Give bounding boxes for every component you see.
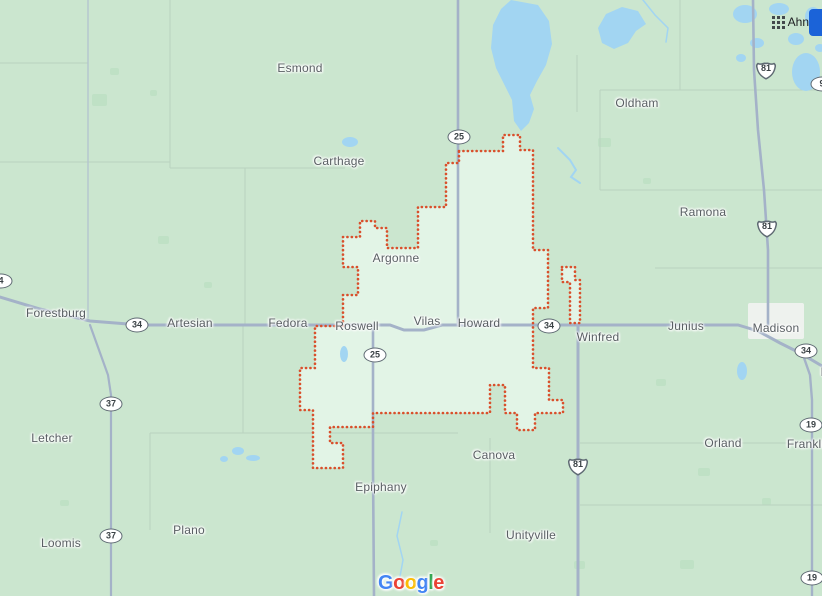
google-logo-letter: g — [417, 572, 429, 594]
route-shield-34: 34 — [795, 344, 818, 359]
place-label-winfred[interactable]: Winfred — [577, 330, 620, 344]
route-shield-34: 34 — [538, 319, 561, 334]
top-right-chip[interactable]: Ahn — [772, 15, 809, 29]
vegetation-patch — [698, 468, 710, 476]
pond — [737, 362, 747, 380]
place-label-letcher[interactable]: Letcher — [31, 431, 72, 445]
google-logo-letter: o — [405, 572, 417, 594]
pond — [750, 38, 764, 48]
pond — [769, 3, 789, 15]
place-label-esmond[interactable]: Esmond — [277, 61, 322, 75]
vegetation-patch — [158, 236, 169, 244]
pond — [342, 137, 358, 147]
place-label-canova[interactable]: Canova — [473, 448, 516, 462]
vegetation-patch — [92, 94, 107, 106]
place-label-orland[interactable]: Orland — [704, 436, 741, 450]
place-label-epiphany[interactable]: Epiphany — [355, 480, 407, 494]
route-shield-19: 19 — [801, 571, 822, 586]
pond — [246, 455, 260, 461]
place-label-carthage[interactable]: Carthage — [314, 154, 365, 168]
vegetation-patch — [150, 90, 157, 96]
place-label-junius[interactable]: Junius — [668, 319, 704, 333]
google-logo[interactable]: Google — [378, 572, 444, 595]
google-logo-letter: G — [378, 572, 393, 594]
pond — [340, 346, 348, 362]
vegetation-patch — [110, 68, 119, 75]
google-logo-letter: e — [433, 572, 444, 594]
route-shield-37: 37 — [100, 529, 123, 544]
place-label-oldham[interactable]: Oldham — [615, 96, 658, 110]
place-label-madison[interactable]: Madison — [753, 321, 800, 335]
pond — [736, 54, 746, 62]
google-logo-letter: o — [393, 572, 405, 594]
vegetation-patch — [656, 379, 666, 386]
pond — [788, 33, 804, 45]
place-label-plano[interactable]: Plano — [173, 523, 205, 537]
map-canvas[interactable]: EsmondCarthageOldhamRamonaArgonneForestb… — [0, 0, 822, 596]
place-label-franklin[interactable]: Franklin — [787, 437, 822, 451]
place-label-vilas[interactable]: Vilas — [414, 314, 441, 328]
place-label-fedora[interactable]: Fedora — [268, 316, 307, 330]
place-label-unityville[interactable]: Unityville — [506, 528, 556, 542]
route-shield-19: 19 — [800, 418, 822, 433]
vegetation-patch — [430, 540, 438, 546]
pond — [232, 447, 244, 455]
route-shield-37: 37 — [100, 397, 123, 412]
partial-place-chip-label[interactable]: Ahn — [788, 15, 809, 29]
vegetation-patch — [762, 498, 771, 505]
place-label-ramona[interactable]: Ramona — [680, 205, 727, 219]
place-label-forestburg[interactable]: Forestburg — [26, 306, 86, 320]
route-shield-81: 81 — [566, 455, 590, 477]
pond — [220, 456, 228, 462]
vegetation-patch — [204, 282, 212, 288]
place-label-argonne[interactable]: Argonne — [373, 251, 420, 265]
vegetation-patch — [680, 560, 694, 569]
route-shield-25: 25 — [448, 130, 471, 145]
vegetation-patch — [643, 178, 651, 184]
vegetation-patch — [60, 500, 69, 506]
road-sd-25-south — [373, 325, 374, 596]
route-shield-34: 34 — [126, 318, 149, 333]
map-graphics — [0, 0, 822, 596]
apps-grid-icon[interactable] — [772, 16, 785, 29]
place-label-loomis[interactable]: Loomis — [41, 536, 81, 550]
place-label-howard[interactable]: Howard — [458, 316, 501, 330]
place-label-artesian[interactable]: Artesian — [167, 316, 213, 330]
place-label-roswell[interactable]: Roswell — [335, 319, 378, 333]
clipped-blue-button[interactable] — [809, 9, 822, 36]
route-shield-25: 25 — [364, 348, 387, 363]
route-shield-81: 81 — [754, 59, 778, 81]
route-shield-81: 81 — [755, 217, 779, 239]
